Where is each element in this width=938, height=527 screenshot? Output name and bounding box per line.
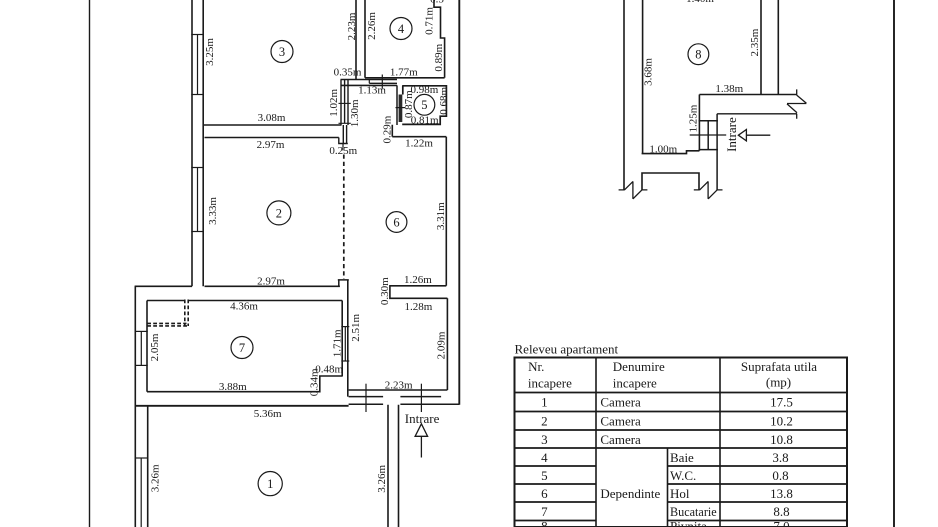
svg-text:1: 1 xyxy=(267,477,273,491)
svg-text:1.13m: 1.13m xyxy=(358,85,386,97)
svg-text:10.2: 10.2 xyxy=(770,413,793,428)
svg-text:4.36m: 4.36m xyxy=(230,300,258,312)
svg-text:3.26m: 3.26m xyxy=(376,465,388,493)
svg-text:Nr.: Nr. xyxy=(528,359,544,374)
svg-text:2.09m: 2.09m xyxy=(436,331,448,359)
svg-text:Hol: Hol xyxy=(670,486,690,501)
svg-text:0.81m: 0.81m xyxy=(411,115,439,127)
svg-text:2: 2 xyxy=(541,413,548,428)
svg-text:Suprafata utila: Suprafata utila xyxy=(741,359,817,374)
svg-text:Denumire: Denumire xyxy=(613,359,665,374)
svg-text:W.C.: W.C. xyxy=(670,468,696,483)
svg-text:1.71m: 1.71m xyxy=(331,329,343,357)
svg-text:7.0: 7.0 xyxy=(773,519,789,527)
svg-text:0.34m: 0.34m xyxy=(308,368,320,396)
svg-text:1.30m: 1.30m xyxy=(349,99,361,127)
svg-text:3: 3 xyxy=(279,45,285,59)
svg-text:Intrare: Intrare xyxy=(405,411,440,426)
svg-text:3.8: 3.8 xyxy=(772,450,788,465)
svg-text:(mp): (mp) xyxy=(766,375,791,390)
svg-text:1.40m: 1.40m xyxy=(686,0,714,5)
svg-text:6: 6 xyxy=(393,215,399,229)
svg-text:3.25m: 3.25m xyxy=(204,38,216,66)
svg-text:2.97m: 2.97m xyxy=(257,139,285,151)
svg-text:Releveu apartament: Releveu apartament xyxy=(515,342,619,357)
svg-text:Pivnita: Pivnita xyxy=(670,519,707,527)
svg-text:0.87m: 0.87m xyxy=(403,90,415,118)
svg-text:3.26m: 3.26m xyxy=(150,464,162,492)
svg-text:13.8: 13.8 xyxy=(770,486,793,501)
svg-text:0.30m: 0.30m xyxy=(379,277,391,305)
svg-text:7: 7 xyxy=(541,504,548,519)
svg-text:1.38m: 1.38m xyxy=(715,83,743,95)
svg-text:1.02m: 1.02m xyxy=(328,88,340,116)
svg-text:1.22m: 1.22m xyxy=(405,138,433,150)
svg-text:3.08m: 3.08m xyxy=(258,112,286,124)
svg-text:1.26m: 1.26m xyxy=(404,274,432,286)
svg-text:3.68m: 3.68m xyxy=(643,58,655,86)
svg-text:4: 4 xyxy=(541,450,548,465)
svg-text:2.26m: 2.26m xyxy=(366,12,378,40)
svg-text:3.33m: 3.33m xyxy=(207,197,219,225)
svg-text:10.8: 10.8 xyxy=(770,432,793,447)
svg-text:0.71m: 0.71m xyxy=(424,7,436,35)
svg-text:3: 3 xyxy=(541,432,548,447)
svg-text:0.89m: 0.89m xyxy=(433,43,445,71)
svg-text:Bucatarie: Bucatarie xyxy=(670,505,717,519)
svg-text:0.25m: 0.25m xyxy=(329,145,357,157)
svg-text:5.36m: 5.36m xyxy=(254,408,282,420)
svg-text:17.5: 17.5 xyxy=(770,395,793,410)
svg-text:0.68m: 0.68m xyxy=(438,86,450,114)
svg-text:1.00m: 1.00m xyxy=(649,144,677,156)
svg-text:6: 6 xyxy=(541,486,548,501)
svg-text:2: 2 xyxy=(276,206,282,220)
svg-text:Baie: Baie xyxy=(670,450,694,465)
svg-text:1.28m: 1.28m xyxy=(404,301,432,313)
svg-text:incapere: incapere xyxy=(613,376,657,391)
svg-text:2.35m: 2.35m xyxy=(749,28,761,56)
svg-text:2.05m: 2.05m xyxy=(149,333,161,361)
svg-text:2.23m: 2.23m xyxy=(346,12,358,40)
svg-text:Intrare: Intrare xyxy=(724,117,739,152)
svg-text:1.77m: 1.77m xyxy=(390,67,418,79)
svg-text:8: 8 xyxy=(541,519,548,527)
svg-text:8: 8 xyxy=(695,48,701,62)
svg-text:3.31m: 3.31m xyxy=(435,202,447,230)
svg-text:0.29m: 0.29m xyxy=(382,115,394,143)
svg-text:7: 7 xyxy=(239,341,245,355)
svg-text:1: 1 xyxy=(541,395,548,410)
svg-text:0.5: 0.5 xyxy=(430,0,444,6)
svg-text:5: 5 xyxy=(421,98,427,112)
svg-text:Camera: Camera xyxy=(600,413,641,428)
svg-text:0.8: 0.8 xyxy=(772,468,788,483)
svg-text:5: 5 xyxy=(541,468,548,483)
svg-text:4: 4 xyxy=(398,22,405,36)
svg-text:incapere: incapere xyxy=(528,376,572,391)
svg-text:2.97m: 2.97m xyxy=(257,276,285,288)
svg-text:2.23m: 2.23m xyxy=(385,380,413,392)
svg-text:3.88m: 3.88m xyxy=(219,381,247,393)
svg-text:Camera: Camera xyxy=(600,432,641,447)
svg-text:2.51m: 2.51m xyxy=(350,313,362,341)
svg-text:Dependinte: Dependinte xyxy=(600,486,660,501)
svg-text:8.8: 8.8 xyxy=(773,504,789,519)
svg-text:1.25m: 1.25m xyxy=(688,104,700,132)
svg-text:0.35m: 0.35m xyxy=(334,67,362,79)
svg-text:Camera: Camera xyxy=(600,395,641,410)
